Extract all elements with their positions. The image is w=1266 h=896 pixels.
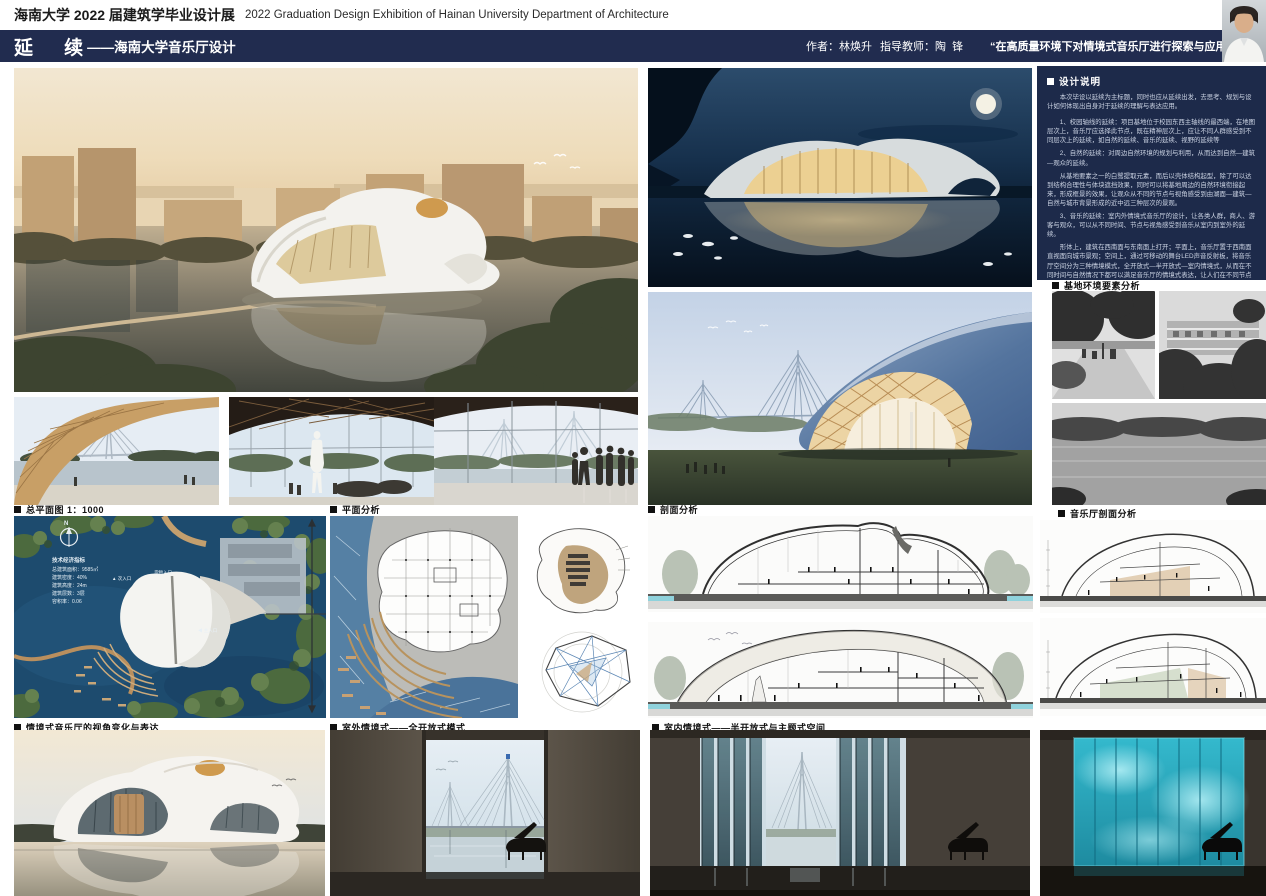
plan-analysis-drawings xyxy=(330,516,640,718)
hall-section-2 xyxy=(1040,618,1266,716)
canopy-art xyxy=(648,292,1032,505)
project-title: 延 续 xyxy=(14,33,85,60)
view-glass-wall xyxy=(434,397,638,505)
hero-art xyxy=(14,68,638,392)
open-mode-rendering xyxy=(330,730,640,896)
section-drawings xyxy=(648,516,1033,718)
window-view xyxy=(426,740,544,872)
hero-aerial-rendering xyxy=(14,68,638,392)
notes-p4: 3、音乐的延续：室内外情境式音乐厅的设计，让各类人群，商人、游客与观众，可以从不… xyxy=(1047,212,1256,239)
open-mode-art xyxy=(330,730,640,896)
led-panel-rendering xyxy=(1040,730,1266,896)
section-art xyxy=(648,516,1033,718)
section-2 xyxy=(648,622,1033,718)
advisor-label: 指导教师：陶 锋 xyxy=(880,38,963,54)
site-plan-drawing: N 技术经济指标 总建筑面积：9585㎡ 建筑密度：40% 建筑高度：24m 建… xyxy=(14,516,326,718)
design-notes-title: 设计说明 xyxy=(1059,74,1101,88)
project-quote: “在高质量环境下对情境式音乐厅进行探索与应用” xyxy=(990,38,1232,54)
semi-open-art xyxy=(650,730,1030,896)
indicator-line: 建筑密度：40% xyxy=(52,574,87,581)
night-art xyxy=(648,68,1032,287)
sunset-rendering xyxy=(14,730,325,896)
led-panel-art xyxy=(1040,730,1266,896)
view-under-arch xyxy=(14,397,219,505)
site-photo-road xyxy=(1052,291,1155,399)
section-label-hall-section: 音乐厅剖面分析 xyxy=(1058,507,1137,519)
notes-p5: 形体上，建筑在西南面与东南面上打开；平面上，音乐厅置于西南面直视面向城市景观；空… xyxy=(1047,243,1256,280)
notes-p2: 2、自然的延续：对周边自然环境的规划与利用，从而达到自然—建筑—观众的延续。 xyxy=(1047,149,1256,167)
gap-view xyxy=(766,738,836,866)
moon-icon xyxy=(976,94,996,114)
author-portrait xyxy=(1222,0,1266,62)
header-bar: 海南大学 2022 届建筑学毕业设计展 2022 Graduation Desi… xyxy=(0,0,1266,30)
section-label-site-plan: 总平面图 1：1000 xyxy=(14,503,104,515)
indicator-line: 建筑高度：24m xyxy=(52,582,87,589)
hall-section-1 xyxy=(1040,520,1266,613)
ground-plan xyxy=(378,528,507,652)
site-plan-art xyxy=(14,516,326,718)
indicators-title: 技术经济指标 xyxy=(52,556,85,564)
notes-p3: 从基地要素之一的白鹭提取元素，而后以壳体结构起型，除了可以达到结构合理性与体块遮… xyxy=(1047,172,1256,208)
indicator-line: 总建筑面积：9585㎡ xyxy=(52,566,98,573)
semi-open-rendering xyxy=(650,730,1030,896)
section-1 xyxy=(648,516,1033,612)
notes-intro: 本次毕设以延续为主标题，同时也应从延续出发，去思考、规划与设计如何体现出自身对于… xyxy=(1047,93,1256,111)
section-bullet-icon xyxy=(1052,282,1059,289)
view-statue-hall xyxy=(229,397,434,505)
sunset-art xyxy=(14,730,325,896)
exhibition-title-cn: 海南大学 2022 届建筑学毕业设计展 xyxy=(14,5,235,25)
project-subtitle: ——海南大学音乐厅设计 xyxy=(87,36,236,56)
section-label-site-env: 基地环境要素分析 xyxy=(1052,279,1140,291)
entrance-main-label: ◀ 主入口 xyxy=(198,628,217,634)
author-portrait-art xyxy=(1222,0,1266,62)
section-bullet-icon xyxy=(1047,78,1054,85)
site-photo-building xyxy=(1159,291,1266,399)
plan-analysis-art xyxy=(330,516,640,718)
canopy-rendering xyxy=(648,292,1032,505)
exhibition-poster: 海南大学 2022 届建筑学毕业设计展 2022 Graduation Desi… xyxy=(0,0,1266,896)
exhibition-title-en: 2022 Graduation Design Exhibition of Hai… xyxy=(245,9,669,21)
north-label: N xyxy=(64,521,68,527)
section-label-section-analysis: 剖面分析 xyxy=(648,503,698,515)
entrance-secondary-label: ▲ 次入口 xyxy=(112,576,131,582)
design-notes-heading: 设计说明 xyxy=(1047,74,1256,88)
author-label: 作者：林焕升 xyxy=(806,38,872,54)
entrance-service-label: 货物入口 xyxy=(154,570,172,576)
indicator-line: 容积率：0.06 xyxy=(52,598,82,605)
section-label-plan-analysis: 平面分析 xyxy=(330,503,380,515)
site-photo-lake xyxy=(1052,403,1266,505)
notes-p1: 1、校园轴线的延续：项目基地位于校园东西主轴线的最西端，在地图层次上，音乐厅应选… xyxy=(1047,118,1256,145)
indicator-line: 建筑层数：3层 xyxy=(52,590,85,597)
night-rendering xyxy=(648,68,1032,287)
design-notes-panel: 设计说明 本次毕设以延续为主标题，同时也应从延续出发，去思考、规划与设计如何体现… xyxy=(1037,66,1266,280)
project-title-bar: 延 续 ——海南大学音乐厅设计 作者：林焕升 指导教师：陶 锋 “在高质量环境下… xyxy=(0,30,1266,62)
